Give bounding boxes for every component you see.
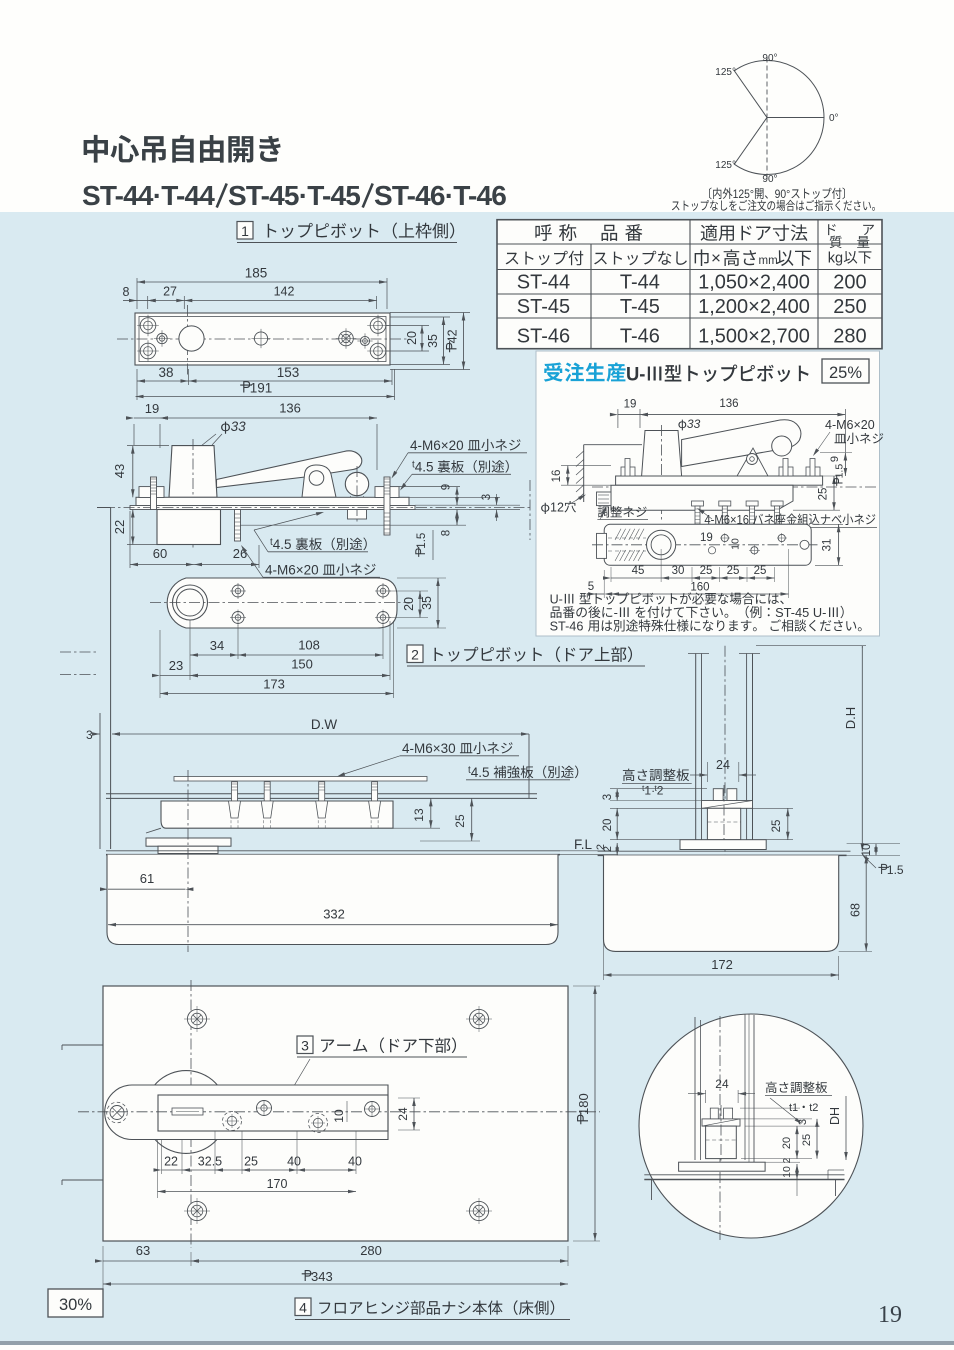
svg-text:3: 3 — [797, 1119, 809, 1125]
svg-text:35: 35 — [426, 334, 440, 348]
svg-text:30: 30 — [672, 565, 685, 577]
svg-text:19: 19 — [145, 401, 159, 416]
svg-text:160: 160 — [690, 582, 709, 594]
svg-text:10: 10 — [861, 844, 873, 857]
svg-text:136: 136 — [719, 398, 738, 410]
svg-text:mm: mm — [759, 255, 778, 267]
svg-text:8: 8 — [441, 530, 453, 536]
svg-text:-: - — [614, 605, 618, 620]
svg-text:43: 43 — [112, 464, 127, 478]
svg-text:4-M6×30: 4-M6×30 — [402, 741, 456, 756]
svg-text:125°: 125° — [715, 160, 736, 171]
svg-text:kg: kg — [828, 251, 843, 267]
svg-text:68: 68 — [849, 903, 863, 917]
svg-text:4: 4 — [299, 1300, 307, 1316]
svg-text:142: 142 — [274, 285, 295, 299]
svg-text:150: 150 — [291, 657, 313, 672]
svg-text:U-: U- — [626, 363, 645, 384]
svg-text:3: 3 — [301, 1038, 309, 1054]
svg-text:2: 2 — [602, 846, 614, 852]
svg-text:ST-44·T-44: ST-44·T-44 — [82, 180, 215, 211]
svg-text:4-M6×20: 4-M6×20 — [265, 563, 319, 578]
svg-text:25: 25 — [244, 1155, 258, 1169]
svg-text:90°: 90° — [775, 188, 791, 201]
svg-text:ST-45·T-45: ST-45·T-45 — [228, 180, 360, 211]
svg-text:4-M6×20: 4-M6×20 — [410, 438, 464, 453]
svg-text:ST-46: ST-46 — [517, 326, 570, 348]
svg-text:1: 1 — [241, 223, 249, 239]
svg-text:F.L: F.L — [574, 837, 593, 852]
svg-text:5: 5 — [588, 581, 594, 593]
svg-text:25: 25 — [727, 565, 740, 577]
svg-text:DH: DH — [828, 1107, 842, 1125]
svg-text:125°: 125° — [715, 67, 736, 78]
svg-text:63: 63 — [136, 1243, 150, 1258]
svg-text:19: 19 — [878, 1302, 902, 1328]
svg-text:3: 3 — [86, 728, 93, 742]
svg-text:20: 20 — [602, 819, 614, 832]
svg-text:34: 34 — [210, 638, 224, 653]
svg-text:332: 332 — [323, 907, 345, 922]
svg-text:25: 25 — [771, 820, 783, 833]
svg-text:T-45: T-45 — [620, 296, 660, 318]
svg-text:10: 10 — [781, 1166, 793, 1178]
svg-text:1.5: 1.5 — [834, 464, 846, 479]
svg-text:22: 22 — [164, 1155, 178, 1169]
svg-text:25: 25 — [801, 1134, 813, 1146]
svg-text:3: 3 — [602, 794, 614, 800]
svg-text:4-M6×20: 4-M6×20 — [825, 418, 875, 432]
svg-text:280: 280 — [360, 1243, 382, 1258]
svg-text:191: 191 — [250, 381, 273, 396]
svg-text:1,500×2,700: 1,500×2,700 — [698, 326, 810, 348]
svg-text:1.5: 1.5 — [887, 863, 904, 877]
svg-text:153: 153 — [277, 365, 300, 380]
svg-text:1,200×2,400: 1,200×2,400 — [698, 296, 810, 318]
svg-text:4.5: 4.5 — [471, 765, 490, 780]
svg-text:173: 173 — [263, 677, 285, 692]
svg-text:24: 24 — [396, 1107, 410, 1121]
svg-text:ST-45 U-: ST-45 U- — [775, 605, 826, 620]
svg-text:280: 280 — [833, 326, 866, 348]
svg-text:9: 9 — [441, 484, 453, 490]
svg-text:4.5: 4.5 — [273, 537, 292, 552]
svg-text:35: 35 — [420, 596, 434, 610]
svg-text:33: 33 — [687, 417, 701, 431]
svg-text:24: 24 — [716, 758, 730, 772]
svg-text:8: 8 — [123, 285, 130, 299]
svg-text:T-44: T-44 — [620, 272, 660, 294]
svg-text:250: 250 — [833, 296, 866, 318]
svg-text:33: 33 — [231, 419, 247, 434]
svg-text:t2: t2 — [809, 1102, 818, 1114]
svg-text:U-: U- — [550, 591, 563, 606]
svg-text:30%: 30% — [59, 1296, 92, 1314]
svg-text:90°: 90° — [762, 174, 777, 185]
svg-text:25%: 25% — [829, 364, 862, 382]
svg-text:31: 31 — [822, 539, 834, 552]
svg-text:90°: 90° — [762, 53, 777, 64]
svg-text:61: 61 — [140, 871, 154, 886]
svg-text:ST-44: ST-44 — [517, 272, 570, 294]
svg-text:20: 20 — [405, 331, 419, 345]
svg-text:2: 2 — [411, 647, 419, 663]
svg-text:22: 22 — [112, 520, 127, 534]
svg-text:60: 60 — [153, 546, 167, 561]
svg-text:20: 20 — [402, 597, 416, 611]
svg-text:13: 13 — [412, 808, 426, 822]
svg-text:42: 42 — [446, 329, 460, 343]
svg-text:172: 172 — [711, 957, 733, 972]
svg-text:40: 40 — [287, 1155, 301, 1169]
svg-text:9: 9 — [829, 456, 841, 462]
svg-text:45: 45 — [632, 565, 645, 577]
svg-text:4.5: 4.5 — [415, 460, 434, 475]
svg-text:200: 200 — [833, 272, 866, 294]
svg-text:38: 38 — [159, 365, 174, 380]
svg-text:1.5: 1.5 — [416, 533, 428, 549]
svg-text:25: 25 — [754, 565, 767, 577]
svg-text:108: 108 — [298, 638, 320, 653]
svg-text:170: 170 — [267, 1177, 288, 1191]
svg-text:12: 12 — [550, 501, 564, 515]
svg-text:27: 27 — [163, 285, 177, 299]
svg-text:10: 10 — [730, 538, 742, 550]
svg-text:180: 180 — [576, 1093, 591, 1115]
svg-text:343: 343 — [311, 1269, 333, 1284]
svg-text:0°: 0° — [829, 113, 839, 124]
svg-text:×: × — [711, 249, 721, 268]
svg-text:20: 20 — [781, 1137, 793, 1149]
svg-text:D.H: D.H — [843, 707, 858, 729]
svg-text:19: 19 — [624, 399, 637, 411]
svg-text:ST-46: ST-46 — [550, 618, 584, 633]
svg-text:23: 23 — [169, 658, 183, 673]
svg-text:2: 2 — [657, 784, 664, 798]
svg-text:32.5: 32.5 — [198, 1155, 222, 1169]
svg-text:ST-45: ST-45 — [517, 296, 570, 318]
svg-text:ST-46·T-46: ST-46·T-46 — [374, 180, 506, 211]
svg-text:3: 3 — [481, 494, 493, 500]
svg-text:26: 26 — [233, 546, 247, 561]
svg-text:136: 136 — [279, 401, 301, 416]
svg-text:16: 16 — [551, 470, 563, 483]
svg-text:40: 40 — [348, 1155, 362, 1169]
svg-text:125°: 125° — [733, 188, 754, 201]
svg-text:D.W: D.W — [311, 717, 338, 732]
svg-text:T-46: T-46 — [620, 326, 660, 348]
svg-text:25: 25 — [700, 565, 713, 577]
svg-text:10: 10 — [332, 1109, 346, 1123]
svg-text:19: 19 — [700, 532, 713, 544]
svg-text:185: 185 — [245, 266, 268, 281]
svg-text:25: 25 — [453, 814, 467, 828]
svg-text:25: 25 — [818, 488, 830, 501]
svg-text:2: 2 — [782, 1157, 793, 1163]
svg-text:1,050×2,400: 1,050×2,400 — [698, 272, 810, 294]
svg-text:24: 24 — [715, 1077, 729, 1091]
